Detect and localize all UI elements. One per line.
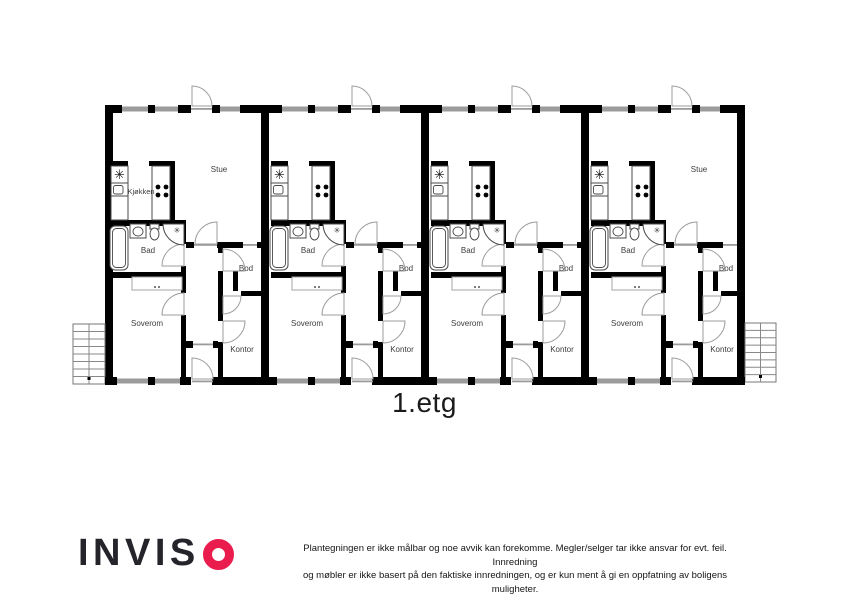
wall [308, 105, 315, 113]
wall [330, 166, 335, 220]
window [277, 379, 308, 384]
wall [506, 341, 513, 348]
wall [105, 377, 117, 385]
wall [378, 271, 383, 321]
burner-icon [324, 193, 329, 198]
entry-door-icon [352, 358, 373, 379]
bathroom-door-icon [322, 244, 344, 266]
logo-o-icon [203, 539, 234, 570]
wall [271, 161, 288, 166]
bedroom-door-icon [482, 293, 504, 315]
office-door-icon [383, 321, 405, 343]
wall [585, 377, 597, 385]
living-room-door-icon [195, 222, 217, 244]
wall [378, 342, 383, 377]
wall [308, 377, 315, 385]
wall [340, 377, 351, 385]
wall [468, 105, 475, 113]
wall [212, 105, 220, 113]
window [352, 381, 373, 383]
window [563, 244, 577, 246]
wall [170, 166, 175, 220]
room-label-soverom: Soverom [451, 319, 483, 328]
wall [661, 315, 666, 377]
burner-icon [644, 193, 649, 198]
room-label-bod: Bod [559, 264, 573, 273]
room-label-soverom: Soverom [611, 319, 643, 328]
wall [692, 105, 700, 113]
window [315, 379, 340, 384]
kitchen-counter-icon [111, 196, 128, 220]
wall [693, 341, 698, 348]
window [122, 107, 148, 112]
wall [721, 291, 745, 296]
wall [538, 271, 543, 321]
wall [240, 105, 265, 113]
wall [658, 105, 671, 113]
wall [218, 271, 223, 321]
bathroom-door-icon [482, 244, 504, 266]
floor-label: 1.etg [0, 387, 849, 419]
wall [468, 377, 475, 385]
window [511, 108, 532, 110]
wall [692, 377, 745, 385]
wall [591, 161, 608, 166]
window [442, 107, 468, 112]
room-label-soverom: Soverom [291, 319, 323, 328]
balcony-door-icon [672, 86, 692, 106]
fridge-symbol-icon: ✳ [114, 167, 125, 182]
window [512, 381, 533, 383]
wall [372, 377, 425, 385]
wall [341, 315, 346, 377]
wall [148, 105, 155, 113]
wall [425, 377, 437, 385]
wall [346, 242, 354, 248]
window [475, 379, 500, 384]
burner-icon [476, 185, 481, 190]
window [403, 244, 417, 246]
window [513, 344, 533, 346]
wall [373, 341, 378, 348]
wall [257, 242, 265, 248]
room-label-soverom: Soverom [131, 319, 163, 328]
window [155, 107, 178, 112]
wall [212, 377, 265, 385]
room-label-bod: Bod [719, 264, 733, 273]
burner-icon [164, 193, 169, 198]
shower-symbol-icon: ✳ [494, 226, 501, 235]
window [380, 107, 400, 112]
disclaimer: Plantegningen er ikke målbar og noe avvi… [294, 542, 736, 596]
bathroom-door-icon [162, 244, 184, 266]
burner-icon [164, 185, 169, 190]
wall [431, 161, 448, 166]
room-label-kontor: Kontor [550, 345, 574, 354]
entry-door-icon [672, 358, 693, 379]
wall [561, 291, 585, 296]
wall [628, 105, 635, 113]
window [243, 244, 257, 246]
wall [149, 161, 175, 166]
wall [105, 105, 122, 113]
apartment-unit-3: ✳✳BadBodSoveromKontor [425, 86, 589, 385]
burner-icon [636, 193, 641, 198]
window [193, 344, 213, 346]
staircase-right-icon [745, 323, 776, 382]
window [597, 379, 628, 384]
wardrobe-icon [292, 277, 342, 290]
window [673, 344, 693, 346]
wall [425, 105, 442, 113]
burner-icon [484, 185, 489, 190]
wall [186, 341, 193, 348]
wall [660, 377, 671, 385]
wall [241, 291, 265, 296]
wall [393, 271, 398, 291]
balcony-door-icon [352, 86, 372, 106]
entry-door-icon [512, 358, 533, 379]
floor-plan-page: ✳✳KjøkkenStueBadBodSoveromKontor✳✳BadBod… [0, 0, 849, 600]
disclaimer-line-1: Plantegningen er ikke målbar og noe avvi… [294, 542, 736, 569]
closet-door-icon [223, 296, 241, 314]
wardrobe-icon [452, 277, 502, 290]
wall [720, 105, 745, 113]
wall [560, 105, 585, 113]
window [437, 379, 468, 384]
room-label-kontor: Kontor [390, 345, 414, 354]
room-label-bad: Bad [621, 246, 635, 255]
window [723, 244, 737, 246]
room-label-kontor: Kontor [710, 345, 734, 354]
bedroom-door-icon [322, 293, 344, 315]
office-door-icon [703, 321, 725, 343]
wall [401, 291, 425, 296]
room-label-kjokken: Kjøkken [127, 187, 154, 196]
room-label-stue: Stue [691, 165, 708, 174]
room-label-bad: Bad [301, 246, 315, 255]
wall [698, 342, 703, 377]
balcony-door-icon [512, 86, 532, 106]
wall [698, 271, 703, 321]
wall [338, 105, 351, 113]
window [672, 381, 693, 383]
wall [532, 377, 585, 385]
wall [532, 105, 540, 113]
window [475, 107, 498, 112]
burner-icon [156, 185, 161, 190]
kitchen-counter-icon [431, 196, 448, 220]
wall [372, 105, 380, 113]
burner-icon [316, 185, 321, 190]
wardrobe-icon [612, 277, 662, 290]
window [117, 379, 148, 384]
window [315, 107, 338, 112]
window [282, 107, 308, 112]
window [700, 107, 720, 112]
room-label-bad: Bad [461, 246, 475, 255]
window [351, 108, 372, 110]
burner-icon [316, 193, 321, 198]
bathroom-door-icon [642, 244, 664, 266]
wall [629, 161, 655, 166]
burner-icon [324, 185, 329, 190]
wall [538, 342, 543, 377]
window [635, 379, 660, 384]
fridge-symbol-icon: ✳ [434, 167, 445, 182]
wall [490, 166, 495, 220]
window [191, 108, 212, 110]
wall [218, 342, 223, 377]
room-label-kontor: Kontor [230, 345, 254, 354]
shower-symbol-icon: ✳ [654, 226, 661, 235]
wall [218, 242, 223, 253]
wall [628, 377, 635, 385]
wall [666, 341, 673, 348]
wall [506, 242, 514, 248]
wall [501, 315, 506, 377]
wardrobe-icon [132, 277, 182, 290]
wall [666, 242, 674, 248]
wall [737, 242, 745, 248]
closet-door-icon [703, 296, 721, 314]
apartment-units: ✳✳KjøkkenStueBadBodSoveromKontor✳✳BadBod… [105, 86, 745, 385]
burner-icon [484, 193, 489, 198]
room-label-bad: Bad [141, 246, 155, 255]
window [602, 107, 628, 112]
wall [148, 377, 155, 385]
closet-door-icon [543, 296, 561, 314]
window [540, 107, 560, 112]
wall [698, 242, 703, 253]
wall [400, 105, 425, 113]
kitchen-counter-icon [591, 196, 608, 220]
burner-icon [476, 193, 481, 198]
wall [346, 341, 353, 348]
wall [378, 242, 383, 253]
burner-icon [636, 185, 641, 190]
wall [713, 271, 718, 291]
room-label-bod: Bod [399, 264, 413, 273]
wall [650, 166, 655, 220]
wall [577, 242, 585, 248]
window [155, 379, 180, 384]
living-room-door-icon [355, 222, 377, 244]
apartment-unit-2: ✳✳BadBodSoveromKontor [265, 86, 429, 385]
wall [500, 377, 511, 385]
window [635, 107, 658, 112]
living-room-door-icon [675, 222, 697, 244]
window [353, 344, 373, 346]
kitchen-counter-icon [271, 196, 288, 220]
room-label-bod: Bod [239, 264, 253, 273]
wall [265, 377, 277, 385]
office-door-icon [223, 321, 245, 343]
wall [178, 105, 191, 113]
entry-door-icon [192, 358, 213, 379]
wall [533, 341, 538, 348]
fridge-symbol-icon: ✳ [594, 167, 605, 182]
fridge-symbol-icon: ✳ [274, 167, 285, 182]
wall [585, 105, 602, 113]
bedroom-door-icon [162, 293, 184, 315]
shower-symbol-icon: ✳ [174, 226, 181, 235]
window [671, 108, 692, 110]
wall [469, 161, 495, 166]
wall [265, 105, 282, 113]
wall [180, 377, 191, 385]
wall [538, 242, 543, 253]
wall [309, 161, 335, 166]
wall [553, 271, 558, 291]
wall [417, 242, 425, 248]
burner-icon [156, 193, 161, 198]
staircase-left-icon [73, 324, 105, 384]
balcony-door-icon [192, 86, 212, 106]
wall [498, 105, 511, 113]
wall [213, 341, 218, 348]
wall [181, 315, 186, 377]
window [192, 381, 213, 383]
wall [233, 271, 238, 291]
shower-symbol-icon: ✳ [334, 226, 341, 235]
room-label-stue: Stue [211, 165, 228, 174]
apartment-unit-1: ✳✳KjøkkenStueBadBodSoveromKontor [105, 86, 269, 385]
living-room-door-icon [515, 222, 537, 244]
apartment-unit-4: ✳✳StueBadBodSoveromKontor [585, 86, 745, 385]
office-door-icon [543, 321, 565, 343]
closet-door-icon [383, 296, 401, 314]
inviso-logo: INVIS [78, 535, 234, 571]
disclaimer-line-2: og møbler er ikke basert på den faktiske… [294, 569, 736, 596]
logo-text: INVIS [78, 534, 200, 572]
window [220, 107, 240, 112]
wall [186, 242, 194, 248]
wall [111, 161, 128, 166]
bedroom-door-icon [642, 293, 664, 315]
burner-icon [644, 185, 649, 190]
